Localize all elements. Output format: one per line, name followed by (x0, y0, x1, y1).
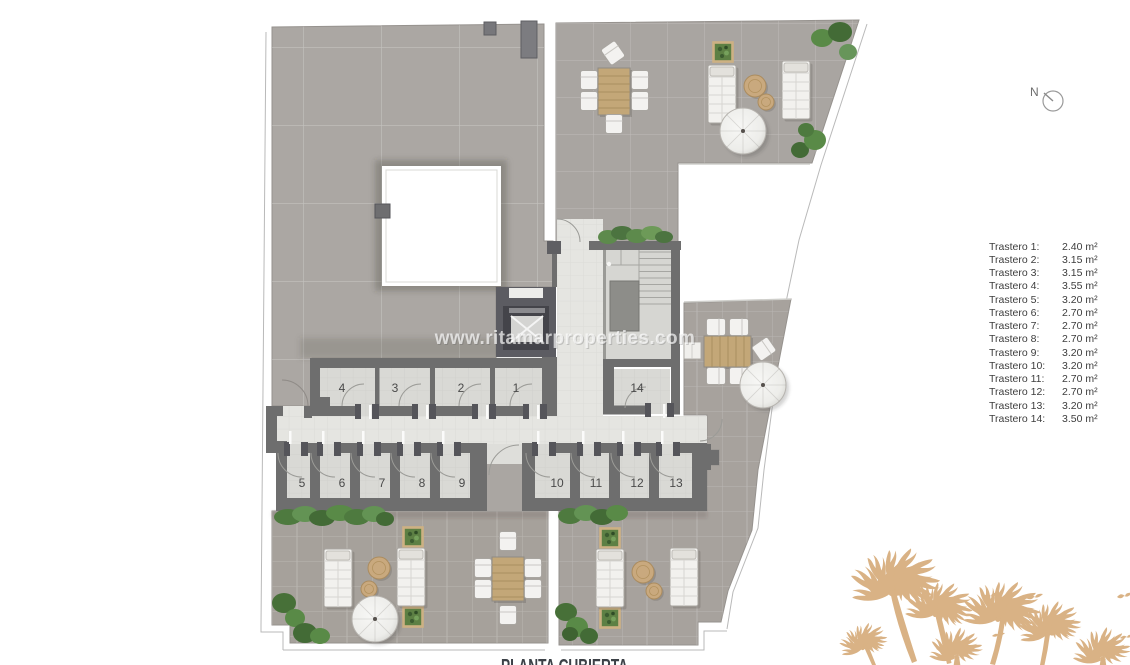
svg-text:Trastero 8:: Trastero 8: (989, 333, 1039, 345)
svg-text:2.70 m²: 2.70 m² (1062, 320, 1098, 332)
svg-text:Trastero 6:: Trastero 6: (989, 307, 1039, 319)
svg-text:13: 13 (669, 476, 683, 490)
svg-text:3.20 m²: 3.20 m² (1062, 294, 1098, 306)
svg-text:2.70 m²: 2.70 m² (1062, 333, 1098, 345)
svg-text:Trastero 12:: Trastero 12: (989, 386, 1045, 398)
svg-text:8: 8 (419, 476, 426, 490)
svg-text:4: 4 (339, 381, 346, 395)
svg-text:Trastero 14:: Trastero 14: (989, 413, 1045, 425)
svg-text:3.15 m²: 3.15 m² (1062, 254, 1098, 266)
svg-text:N: N (1030, 85, 1039, 99)
svg-text:2.40 m²: 2.40 m² (1062, 241, 1098, 253)
svg-text:11: 11 (590, 476, 603, 490)
svg-text:Trastero 11:: Trastero 11: (989, 373, 1044, 385)
svg-text:Trastero 10:: Trastero 10: (989, 360, 1045, 372)
svg-text:Trastero 4:: Trastero 4: (989, 280, 1039, 292)
svg-text:Trastero 13:: Trastero 13: (989, 400, 1045, 412)
svg-text:3.20 m²: 3.20 m² (1062, 347, 1098, 359)
svg-text:PLANTA CUBIERTA: PLANTA CUBIERTA (501, 656, 628, 665)
svg-text:Trastero 5:: Trastero 5: (989, 294, 1039, 306)
svg-text:3.50 m²: 3.50 m² (1062, 413, 1098, 425)
svg-text:7: 7 (379, 476, 386, 490)
svg-text:Trastero 2:: Trastero 2: (989, 254, 1039, 266)
svg-text:Trastero 3:: Trastero 3: (989, 267, 1039, 279)
svg-text:5: 5 (299, 476, 306, 490)
svg-text:1: 1 (513, 381, 520, 395)
svg-text:2.70 m²: 2.70 m² (1062, 386, 1098, 398)
svg-text:9: 9 (459, 476, 466, 490)
svg-text:2: 2 (458, 381, 465, 395)
svg-text:6: 6 (339, 476, 346, 490)
svg-text:10: 10 (550, 476, 564, 490)
svg-text:3.55 m²: 3.55 m² (1062, 280, 1098, 292)
svg-text:Trastero 1:: Trastero 1: (989, 241, 1039, 253)
svg-text:Trastero 7:: Trastero 7: (989, 320, 1039, 332)
svg-text:2.70 m²: 2.70 m² (1062, 307, 1098, 319)
svg-text:Trastero 9:: Trastero 9: (989, 347, 1039, 359)
svg-text:14: 14 (630, 381, 644, 395)
svg-text:12: 12 (630, 476, 644, 490)
svg-text:2.70 m²: 2.70 m² (1062, 373, 1098, 385)
svg-text:3.20 m²: 3.20 m² (1062, 360, 1098, 372)
svg-text:3: 3 (392, 381, 399, 395)
svg-text:www.ritamarproperties.com: www.ritamarproperties.com (434, 328, 696, 349)
svg-text:3.15 m²: 3.15 m² (1062, 267, 1098, 279)
svg-text:3.20 m²: 3.20 m² (1062, 400, 1098, 412)
